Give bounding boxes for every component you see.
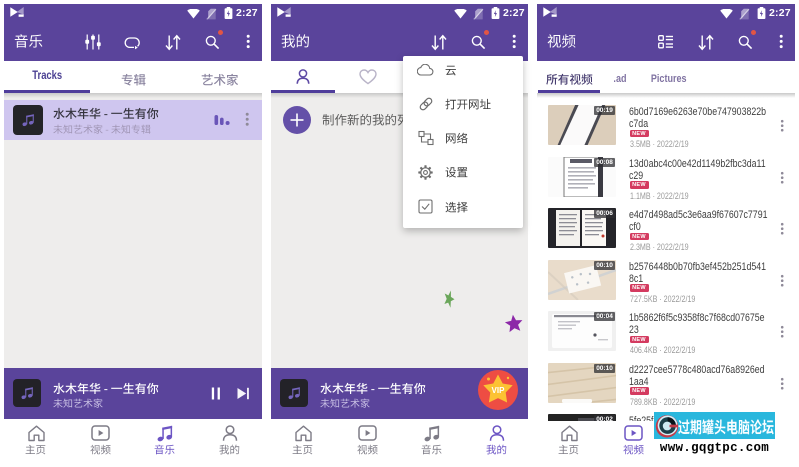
svg-text:VIP: VIP (492, 386, 506, 395)
